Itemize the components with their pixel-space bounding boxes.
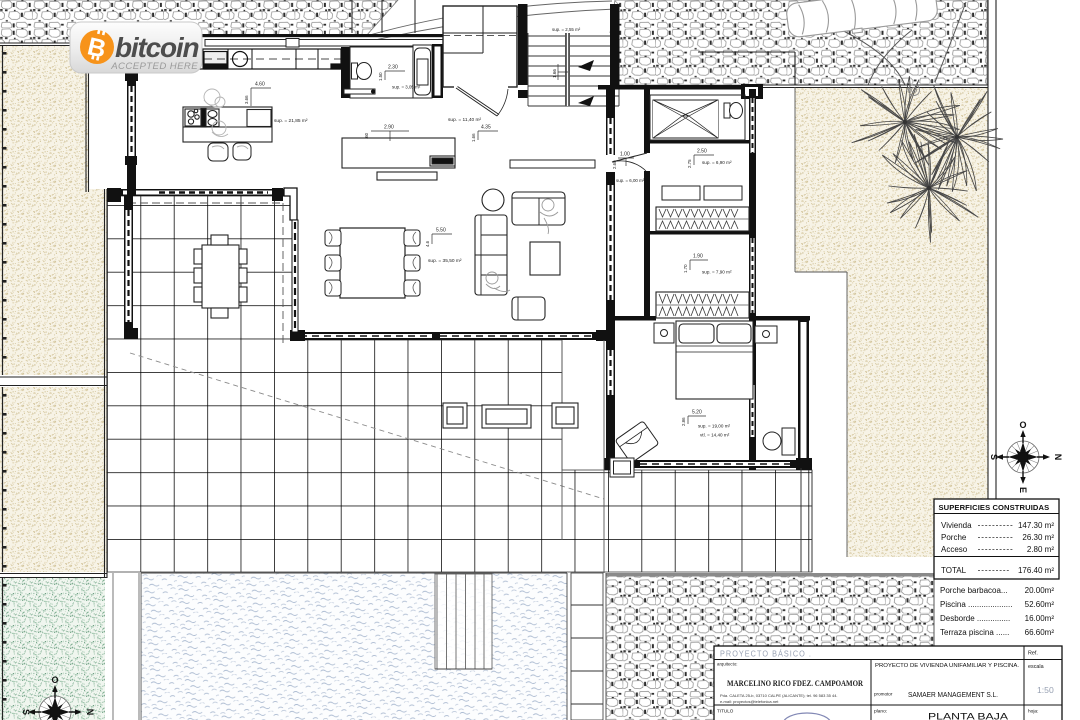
svg-text:Desborde ...............: Desborde ............... (940, 614, 1010, 623)
svg-text:2.30: 2.30 (388, 65, 398, 71)
svg-text:Terraza piscina ......: Terraza piscina ...... (940, 628, 1009, 637)
svg-text:SAMAER MANAGEMENT S.L.: SAMAER MANAGEMENT S.L. (908, 692, 998, 699)
svg-text:147.30 m²: 147.30 m² (1018, 521, 1054, 530)
svg-text:2.90: 2.90 (384, 125, 394, 131)
svg-text:.60: .60 (364, 132, 369, 139)
svg-text:1.66: 1.66 (471, 133, 476, 142)
svg-text:SUPERFICIES CONSTRUIDAS: SUPERFICIES CONSTRUIDAS (939, 503, 1050, 512)
svg-text:1.90: 1.90 (693, 254, 703, 260)
svg-text:26.30 m²: 26.30 m² (1022, 533, 1054, 542)
svg-text:bitcoin: bitcoin (115, 32, 198, 63)
svg-text:Vivienda: Vivienda (941, 521, 972, 530)
svg-text:sup. = 7,90 m²: sup. = 7,90 m² (702, 270, 732, 275)
svg-text:sup. = 6,90 m²: sup. = 6,90 m² (702, 160, 732, 165)
svg-text:e-mail: proyectos@telefonica.n: e-mail: proyectos@telefonica.net (720, 699, 779, 704)
svg-text:sup. = 11,40 m²: sup. = 11,40 m² (448, 117, 482, 123)
svg-text:1:50: 1:50 (1037, 685, 1054, 695)
svg-text:PLANTA BAJA: PLANTA BAJA (928, 711, 1009, 720)
svg-text:sup. = 3,05 m²: sup. = 3,05 m² (392, 85, 421, 90)
svg-text:Porche: Porche (941, 533, 967, 542)
svg-text:Pda. CALETA 25-b, 03710 CALPE: Pda. CALETA 25-b, 03710 CALPE (ALICANTE)… (720, 693, 838, 698)
svg-text:TITULO: TITULO (717, 709, 734, 714)
svg-text:PROYECTO DE VIVIENDA UNIFAM: PROYECTO DE VIVIENDA UNIFAMILIAR Y PISCI… (875, 663, 1019, 669)
svg-text:20.00m²: 20.00m² (1025, 586, 1055, 595)
svg-text:2.50: 2.50 (697, 149, 707, 155)
svg-text:sup. = 21,85 m²: sup. = 21,85 m² (274, 118, 308, 124)
svg-text:sup. = 2,55 m²: sup. = 2,55 m² (552, 27, 581, 32)
svg-text:TOTAL: TOTAL (941, 566, 967, 575)
svg-text:hoja:: hoja: (1028, 709, 1038, 715)
svg-text:MARCELINO RICO FDEZ. CAMPOAMOR: MARCELINO RICO FDEZ. CAMPOAMOR (727, 679, 863, 688)
svg-text:1.70: 1.70 (683, 264, 688, 273)
svg-text:2.80 m²: 2.80 m² (1027, 545, 1054, 554)
svg-text:2.75: 2.75 (687, 159, 692, 168)
svg-text:2.86: 2.86 (681, 417, 686, 426)
svg-text:ACCEPTED HERE: ACCEPTED HERE (110, 61, 198, 72)
svg-text:4.6: 4.6 (425, 240, 430, 247)
svg-text:3.66: 3.66 (244, 95, 249, 104)
svg-text:2.60: 2.60 (612, 160, 617, 169)
svg-text:176.40 m²: 176.40 m² (1018, 566, 1054, 575)
svg-text:66.60m²: 66.60m² (1025, 628, 1055, 637)
svg-text:sup. = 19,00 m²: sup. = 19,00 m² (698, 424, 731, 429)
svg-text:Acceso: Acceso (941, 545, 968, 554)
svg-text:vtl. = 14,40 m²: vtl. = 14,40 m² (700, 433, 730, 438)
svg-text:promotor: promotor (874, 692, 893, 697)
svg-text:plano:: plano: (874, 709, 887, 715)
svg-text:Porche barbacoa...: Porche barbacoa... (940, 586, 1008, 595)
svg-text:52.60m²: 52.60m² (1025, 600, 1055, 609)
svg-text:4.35: 4.35 (481, 125, 491, 131)
svg-text:escala: escala (1028, 664, 1044, 670)
svg-text:PROYECTO BÁSICO .: PROYECTO BÁSICO . (720, 649, 812, 659)
svg-text:4.60: 4.60 (255, 82, 265, 88)
svg-text:arquitecto:: arquitecto: (717, 662, 738, 667)
svg-text:sup. = 6,00 m²: sup. = 6,00 m² (616, 178, 645, 183)
svg-text:Ref.: Ref. (1028, 651, 1038, 657)
svg-text:1.66: 1.66 (552, 69, 557, 78)
svg-text:5.20: 5.20 (692, 410, 702, 416)
svg-text:1.00: 1.00 (620, 152, 630, 158)
svg-text:sup. = 35,50 m²: sup. = 35,50 m² (428, 258, 462, 264)
svg-text:Piscina ....................: Piscina .................... (940, 600, 1012, 609)
svg-text:5.50: 5.50 (436, 228, 446, 234)
svg-text:16.00m²: 16.00m² (1025, 614, 1055, 623)
svg-text:1.50: 1.50 (378, 72, 383, 81)
